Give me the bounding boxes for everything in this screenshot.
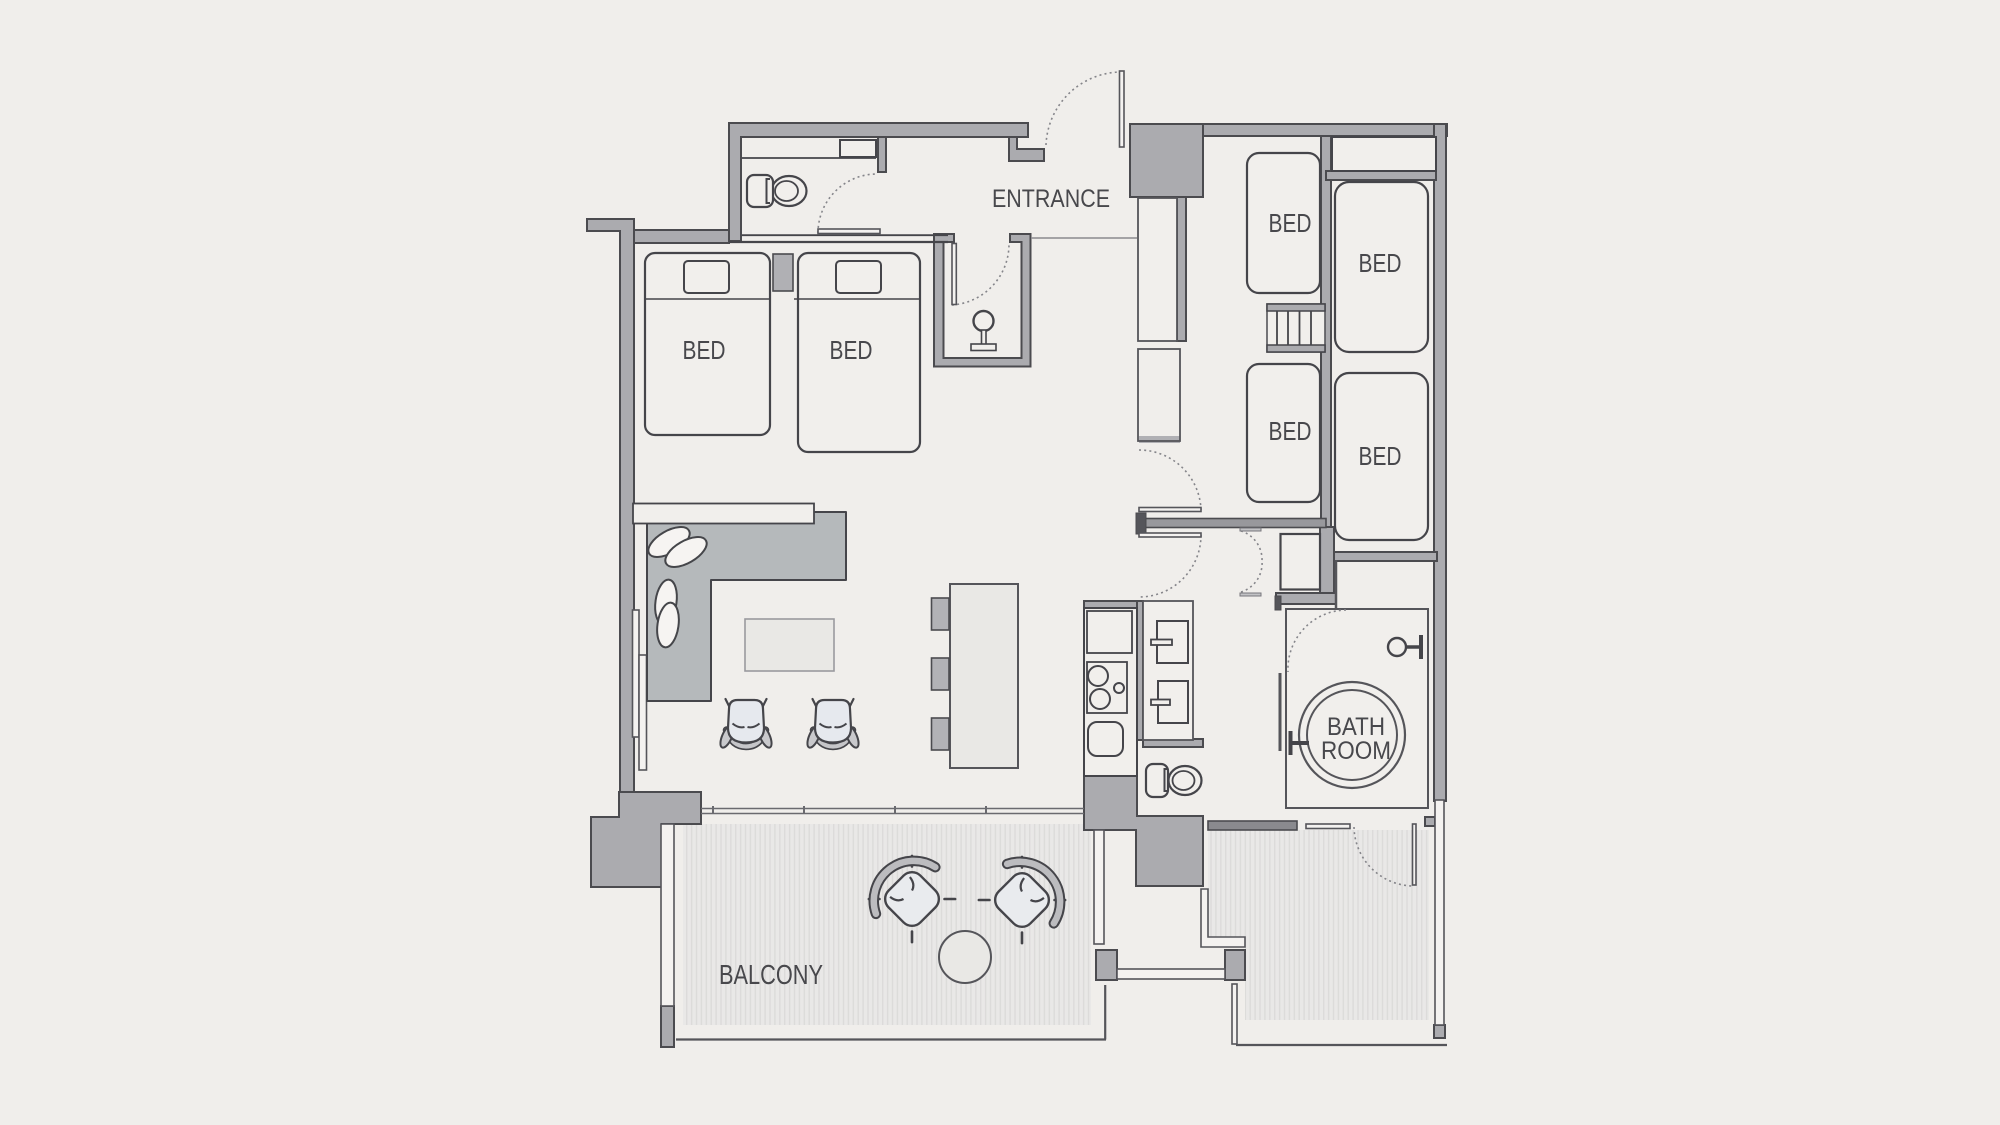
svg-text:ROOM: ROOM: [1321, 737, 1391, 765]
svg-text:ENTRANCE: ENTRANCE: [992, 185, 1110, 213]
svg-text:BED: BED: [1359, 441, 1402, 471]
svg-text:BED: BED: [830, 335, 873, 365]
svg-text:BED: BED: [683, 335, 726, 365]
svg-text:BED: BED: [1359, 248, 1402, 278]
svg-text:BED: BED: [1269, 208, 1312, 238]
svg-text:BALCONY: BALCONY: [719, 959, 823, 990]
svg-text:BED: BED: [1269, 416, 1312, 446]
